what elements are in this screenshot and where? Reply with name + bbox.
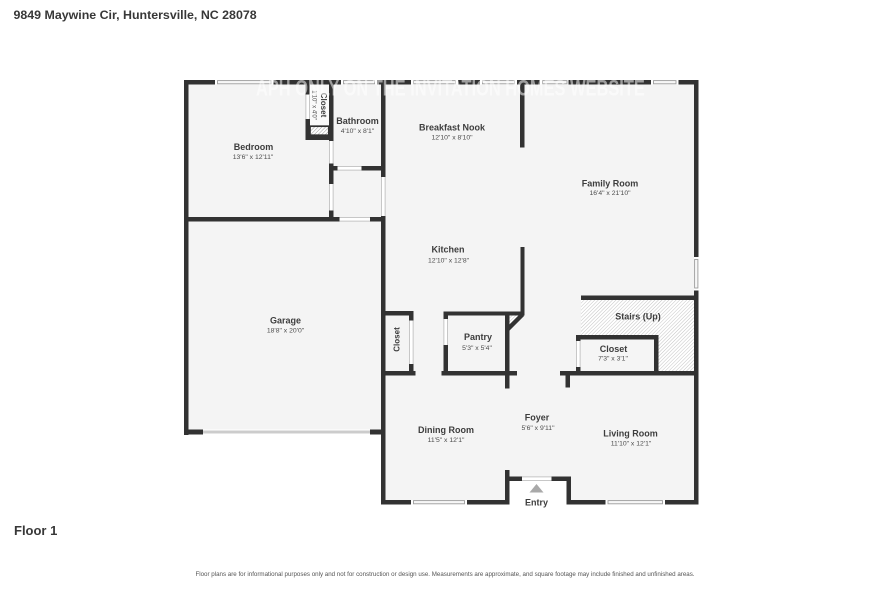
svg-text:5'3" x 5'4": 5'3" x 5'4" xyxy=(462,345,492,352)
svg-text:Closet: Closet xyxy=(600,344,628,354)
svg-text:Family Room: Family Room xyxy=(582,179,639,189)
svg-text:Living Room: Living Room xyxy=(603,429,658,439)
svg-text:12'10" x 8'10": 12'10" x 8'10" xyxy=(431,135,473,142)
svg-text:Kitchen: Kitchen xyxy=(431,245,464,255)
svg-text:Dining Room: Dining Room xyxy=(418,425,474,435)
svg-text:Stairs (Up): Stairs (Up) xyxy=(615,312,661,322)
svg-text:Foyer: Foyer xyxy=(525,413,550,423)
svg-text:Pantry: Pantry xyxy=(464,332,492,342)
svg-text:11'10" x 12'1": 11'10" x 12'1" xyxy=(611,441,652,448)
svg-text:Garage: Garage xyxy=(270,316,301,326)
svg-text:12'10" x 12'8": 12'10" x 12'8" xyxy=(428,258,470,265)
svg-text:9849 Maywine Cir, Huntersville: 9849 Maywine Cir, Huntersville, NC 28078 xyxy=(14,8,257,22)
svg-text:4'10" x 8'1": 4'10" x 8'1" xyxy=(341,128,375,135)
svg-text:Bathroom: Bathroom xyxy=(336,116,379,126)
svg-text:Bedroom: Bedroom xyxy=(234,142,274,152)
svg-text:Floor 1: Floor 1 xyxy=(14,523,57,538)
svg-text:7'3" x 3'1": 7'3" x 3'1" xyxy=(598,356,628,363)
svg-text:APH ONLY ON THE INVITATION HOM: APH ONLY ON THE INVITATION HOMES WEBSITE xyxy=(256,76,645,101)
svg-text:11'5" x 12'1": 11'5" x 12'1" xyxy=(428,437,465,444)
svg-text:Entry: Entry xyxy=(525,498,548,508)
svg-text:13'6" x 12'11": 13'6" x 12'11" xyxy=(233,154,274,161)
svg-text:Floor plans are for informatio: Floor plans are for informational purpos… xyxy=(195,571,694,578)
svg-text:Breakfast Nook: Breakfast Nook xyxy=(419,123,486,133)
svg-text:18'8" x 20'0": 18'8" x 20'0" xyxy=(267,328,305,335)
svg-text:Closet: Closet xyxy=(393,327,402,352)
svg-text:5'6" x 9'11": 5'6" x 9'11" xyxy=(522,425,556,432)
svg-text:16'4" x 21'10": 16'4" x 21'10" xyxy=(589,190,631,197)
